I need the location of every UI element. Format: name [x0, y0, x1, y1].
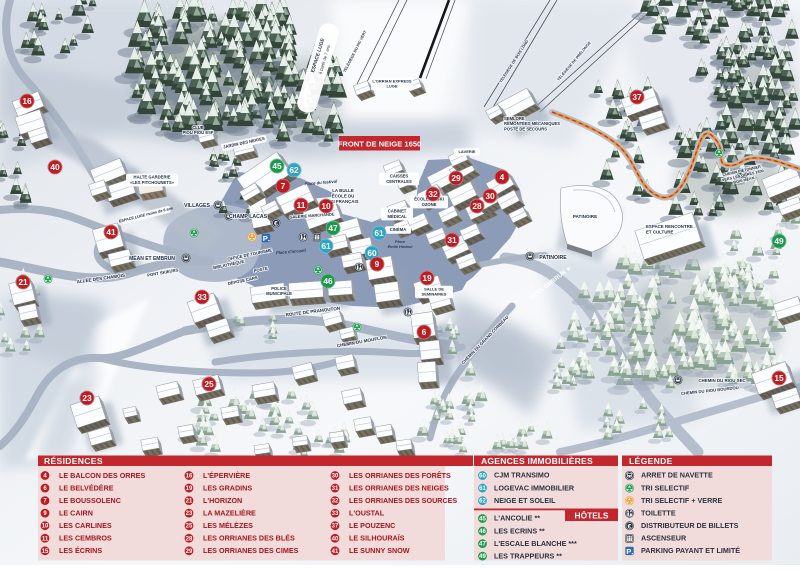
- svg-text:€: €: [274, 221, 278, 228]
- svg-text:OZONE: OZONE: [422, 202, 437, 207]
- svg-text:32: 32: [332, 499, 339, 505]
- svg-text:LE BELVÉDÈRE: LE BELVÉDÈRE: [59, 483, 114, 492]
- svg-text:61: 61: [374, 228, 384, 238]
- svg-text:10: 10: [321, 201, 331, 211]
- svg-text:ESPACE RENCONTRE: ESPACE RENCONTRE: [646, 224, 693, 229]
- svg-text:DISTRIBUTEUR DE BILLETS: DISTRIBUTEUR DE BILLETS: [641, 521, 739, 530]
- svg-text:CHEMIN DU RIOU SEC: CHEMIN DU RIOU SEC: [698, 378, 746, 383]
- svg-text:45: 45: [479, 517, 486, 523]
- svg-text:37: 37: [632, 92, 642, 102]
- svg-text:11: 11: [42, 536, 49, 542]
- svg-text:9: 9: [375, 259, 380, 269]
- svg-text:46: 46: [323, 276, 333, 286]
- svg-text:MUNICIPALE: MUNICIPALE: [266, 291, 292, 296]
- svg-text:11: 11: [297, 200, 306, 210]
- svg-text:LES CEMBROS: LES CEMBROS: [59, 534, 112, 543]
- svg-text:NEIGE ET SOLEIL: NEIGE ET SOLEIL: [494, 496, 556, 505]
- svg-text:28: 28: [186, 536, 193, 542]
- svg-text:41: 41: [106, 227, 116, 237]
- svg-text:L'ANCOLIE **: L'ANCOLIE **: [494, 514, 540, 523]
- svg-text:LES ÉCRINS: LES ÉCRINS: [59, 546, 102, 555]
- svg-text:MÉDICAL: MÉDICAL: [387, 214, 407, 219]
- svg-text:LES GRADINS: LES GRADINS: [203, 483, 252, 492]
- svg-text:16: 16: [22, 96, 32, 106]
- svg-text:19: 19: [186, 486, 193, 492]
- svg-text:46: 46: [479, 529, 486, 535]
- svg-text:15: 15: [774, 373, 784, 383]
- svg-text:41: 41: [332, 549, 339, 555]
- svg-text:LÉGENDE: LÉGENDE: [629, 456, 673, 466]
- svg-text:25: 25: [186, 524, 193, 530]
- svg-text:Émile Hodoul: Émile Hodoul: [388, 244, 414, 249]
- svg-text:40: 40: [332, 536, 339, 542]
- svg-text:60: 60: [479, 474, 486, 480]
- svg-text:«LES PITCHOUNETS»: «LES PITCHOUNETS»: [130, 180, 175, 185]
- svg-text:LES ORRIANES DES FORÊTS: LES ORRIANES DES FORÊTS: [349, 471, 451, 480]
- svg-text:P: P: [263, 234, 268, 243]
- svg-text:ET CULTURE: ET CULTURE: [646, 229, 674, 234]
- svg-text:21: 21: [186, 499, 193, 505]
- svg-text:LA BULLE: LA BULLE: [332, 188, 354, 193]
- svg-text:HÔTELS: HÔTELS: [575, 509, 609, 520]
- svg-text:P: P: [626, 547, 631, 556]
- svg-text:LES ORRIANES DES NEIGES: LES ORRIANES DES NEIGES: [349, 483, 449, 492]
- svg-text:LOGEVAC IMMOBILIER: LOGEVAC IMMOBILIER: [494, 483, 575, 492]
- svg-text:LE CAIRN: LE CAIRN: [59, 509, 93, 518]
- svg-text:RÉSIDENCES: RÉSIDENCES: [44, 456, 103, 466]
- svg-text:LE BALCON DES ORRES: LE BALCON DES ORRES: [59, 471, 145, 480]
- svg-text:49: 49: [479, 554, 486, 560]
- svg-text:AGENCES IMMOBILIÈRES: AGENCES IMMOBILIÈRES: [481, 456, 593, 466]
- svg-text:TRI SELECTIF + VERRE: TRI SELECTIF + VERRE: [641, 496, 722, 505]
- svg-text:19: 19: [422, 273, 432, 283]
- svg-text:7: 7: [281, 181, 286, 191]
- svg-text:29: 29: [451, 173, 461, 183]
- svg-text:31: 31: [332, 486, 339, 492]
- svg-text:LES TRAPPEURS **: LES TRAPPEURS **: [494, 551, 562, 560]
- svg-text:PATINOIRE: PATINOIRE: [539, 255, 567, 261]
- svg-text:L'HORIZON: L'HORIZON: [203, 496, 242, 505]
- svg-text:21: 21: [18, 277, 28, 287]
- svg-text:LES ECRINS **: LES ECRINS **: [494, 526, 545, 535]
- svg-text:LES CARLINES: LES CARLINES: [59, 521, 112, 530]
- svg-text:LE BOUSSOLENC: LE BOUSSOLENC: [59, 496, 121, 505]
- svg-text:10: 10: [42, 524, 49, 530]
- svg-text:23: 23: [186, 511, 193, 517]
- svg-text:LE POUZENC: LE POUZENC: [349, 521, 395, 530]
- svg-text:POSTE DE SECOURS: POSTE DE SECOURS: [504, 126, 547, 131]
- svg-text:FRONT DE NEIGE 1650: FRONT DE NEIGE 1650: [338, 139, 422, 148]
- svg-text:33: 33: [332, 511, 339, 517]
- svg-text:TRI SELECTIF: TRI SELECTIF: [641, 483, 690, 492]
- svg-text:CAISSES: CAISSES: [390, 173, 409, 178]
- svg-text:HALTE GARDERIE: HALTE GARDERIE: [134, 174, 171, 179]
- svg-text:30: 30: [332, 474, 339, 480]
- svg-text:LAVERIE: LAVERIE: [458, 149, 475, 154]
- svg-text:LES ORRIANES DES BLÉS: LES ORRIANES DES BLÉS: [203, 534, 295, 543]
- svg-text:60: 60: [367, 248, 377, 258]
- svg-text:€: €: [628, 523, 632, 530]
- svg-text:16: 16: [186, 474, 193, 480]
- svg-text:49: 49: [774, 236, 784, 246]
- svg-text:LUGE: LUGE: [386, 84, 397, 89]
- svg-text:CENTRALES: CENTRALES: [386, 179, 412, 184]
- svg-text:L'OUSTAL: L'OUSTAL: [349, 509, 385, 518]
- svg-text:37: 37: [332, 524, 339, 530]
- svg-text:ASCENSEUR: ASCENSEUR: [641, 534, 687, 543]
- svg-text:25: 25: [204, 379, 214, 389]
- svg-text:ARRET DE NAVETTE: ARRET DE NAVETTE: [641, 471, 713, 480]
- svg-text:L'ESCALE BLANCHE ***: L'ESCALE BLANCHE ***: [494, 539, 577, 548]
- svg-text:L'ÉPERVIÈRE: L'ÉPERVIÈRE: [203, 471, 250, 480]
- svg-text:23: 23: [82, 393, 92, 403]
- svg-text:CABINET: CABINET: [388, 208, 407, 213]
- svg-text:4: 4: [500, 172, 505, 182]
- svg-text:62: 62: [289, 165, 299, 175]
- svg-text:LE SUNNY SNOW: LE SUNNY SNOW: [349, 546, 410, 555]
- svg-text:MÉAN ET EMBRUN: MÉAN ET EMBRUN: [129, 254, 175, 262]
- svg-text:15: 15: [42, 549, 49, 555]
- svg-text:6: 6: [422, 327, 427, 337]
- svg-text:47: 47: [479, 542, 486, 548]
- svg-text:40: 40: [50, 162, 60, 172]
- svg-text:47: 47: [328, 223, 338, 233]
- svg-text:CINÉMA: CINÉMA: [390, 227, 407, 232]
- svg-text:LES ORRIANES DES SOURCES: LES ORRIANES DES SOURCES: [349, 496, 457, 505]
- svg-text:61: 61: [479, 486, 486, 492]
- svg-text:SÉMINAIRES: SÉMINAIRES: [422, 292, 447, 297]
- svg-text:61: 61: [321, 241, 331, 251]
- svg-text:LES MÉLÈZES: LES MÉLÈZES: [203, 521, 253, 530]
- svg-text:62: 62: [479, 499, 486, 505]
- svg-text:28: 28: [472, 201, 482, 211]
- svg-text:ÉCOLE DU: ÉCOLE DU: [332, 193, 355, 198]
- svg-text:VILLAGES: VILLAGES: [184, 203, 210, 209]
- svg-text:CHAMP LACAS: CHAMP LACAS: [229, 214, 268, 220]
- svg-text:LES ORRIANES DES CIMES: LES ORRIANES DES CIMES: [203, 546, 299, 555]
- svg-text:LA MAZELIÈRE: LA MAZELIÈRE: [203, 509, 256, 518]
- svg-text:PIOU PIOU ESF: PIOU PIOU ESF: [183, 130, 214, 135]
- svg-text:PARKING PAYANT ET LIMITÉ: PARKING PAYANT ET LIMITÉ: [641, 546, 740, 555]
- svg-text:32: 32: [428, 189, 438, 199]
- svg-text:30: 30: [485, 191, 495, 201]
- svg-text:29: 29: [186, 549, 193, 555]
- svg-text:TOILETTE: TOILETTE: [641, 508, 676, 517]
- svg-text:31: 31: [447, 235, 457, 245]
- svg-text:45: 45: [272, 161, 282, 171]
- svg-text:LE SILHOURAÏS: LE SILHOURAÏS: [349, 534, 405, 543]
- svg-text:33: 33: [197, 292, 207, 302]
- svg-text:PATINOIRE: PATINOIRE: [573, 214, 597, 219]
- svg-text:CJM TRANSIMO: CJM TRANSIMO: [494, 471, 550, 480]
